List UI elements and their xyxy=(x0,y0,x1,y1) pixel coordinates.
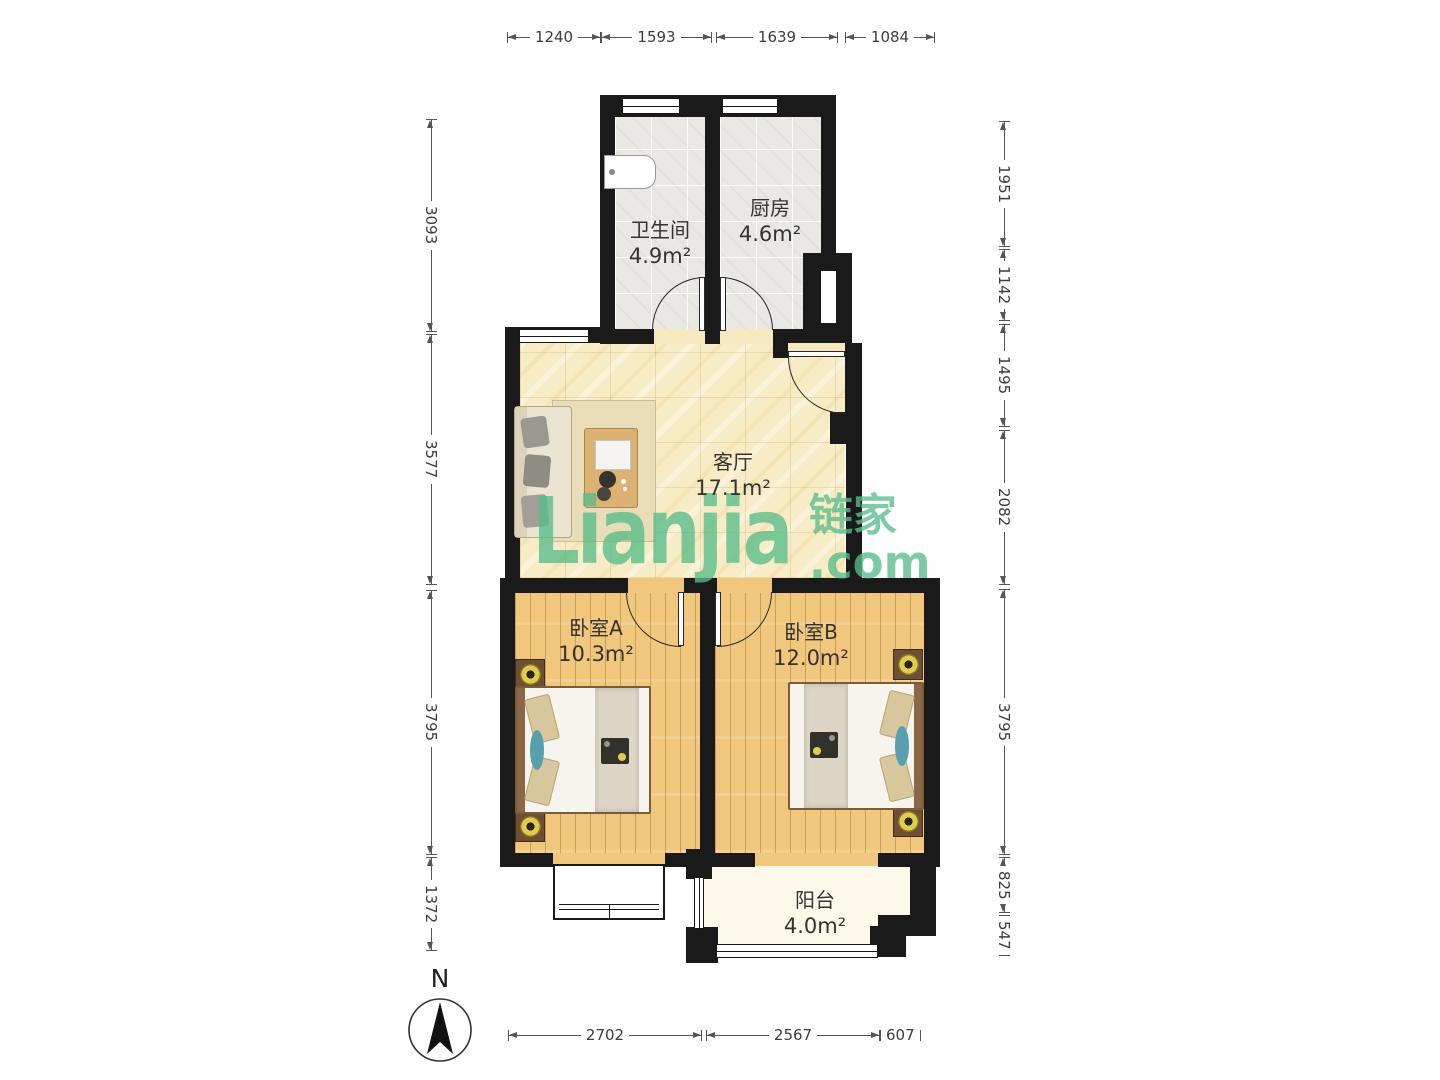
exterior-notch xyxy=(821,271,836,323)
dim-left-0: 3093 xyxy=(422,119,440,332)
room-label-bathroom: 卫生间 4.9m² xyxy=(605,218,715,269)
sofa-pillow xyxy=(521,494,550,528)
bedroom-a-bed xyxy=(515,686,651,814)
bedside-lamp-icon xyxy=(520,816,541,837)
bedside-lamp-icon xyxy=(898,811,919,832)
dim-right-1: 1142 xyxy=(995,249,1013,321)
bed-tray-item xyxy=(829,735,835,741)
kitchen-door-leaf xyxy=(720,277,726,331)
room-label-bedroom-a: 卧室A 10.3m² xyxy=(540,616,652,667)
dim-left-1: 3577 xyxy=(422,334,440,585)
room-name: 卧室A xyxy=(569,616,623,641)
bay-window-mullion xyxy=(609,904,610,918)
wall xyxy=(924,578,940,867)
room-name: 阳台 xyxy=(795,888,835,913)
dim-right-4: 3795 xyxy=(995,589,1013,855)
bathroom-washbasin xyxy=(604,155,656,189)
coffee-table-bowl xyxy=(599,471,616,488)
compass: N xyxy=(405,966,475,1066)
room-area: 12.0m² xyxy=(773,645,849,671)
dim-top-2: 1639 xyxy=(716,28,838,46)
dim-bottom-0: 2702 xyxy=(508,1026,702,1044)
dim-top-3: 1084 xyxy=(845,28,935,46)
wall xyxy=(845,343,862,418)
coffee-table-bowl xyxy=(597,487,611,501)
balcony-front-window xyxy=(716,944,878,958)
room-label-bedroom-b: 卧室B 12.0m² xyxy=(755,620,867,671)
room-label-living: 客厅 17.1m² xyxy=(678,450,788,501)
dim-right-2: 1495 xyxy=(995,324,1013,427)
dim-left-2: 3795 xyxy=(422,590,440,855)
wall xyxy=(818,323,852,344)
bed-accent-cushion xyxy=(530,730,544,770)
room-area: 4.0m² xyxy=(784,913,846,939)
wall xyxy=(846,412,862,592)
bedside-lamp-icon xyxy=(898,654,919,675)
balcony-opening-gap xyxy=(755,853,878,866)
coffee-table xyxy=(584,428,638,508)
bedside-lamp-icon xyxy=(520,664,541,685)
bathroom-door-gap xyxy=(654,329,705,344)
bed-headboard xyxy=(914,684,922,808)
bed-accent-cushion xyxy=(895,726,909,766)
wall xyxy=(686,927,718,963)
sofa-pillow xyxy=(520,415,550,448)
balcony-floor-right xyxy=(878,861,912,916)
bedroom-a-door-leaf xyxy=(678,592,684,646)
wall xyxy=(700,578,715,867)
coffee-table-cup xyxy=(621,479,626,484)
compass-north-label: N xyxy=(405,966,475,991)
nightstand xyxy=(893,806,923,837)
wall xyxy=(600,329,818,344)
nightstand xyxy=(893,649,923,680)
dim-right-5: 825 xyxy=(995,857,1013,913)
room-area: 10.3m² xyxy=(558,641,634,667)
room-name: 卫生间 xyxy=(630,218,690,243)
dim-right-3: 2082 xyxy=(995,430,1013,585)
washbasin-drain xyxy=(609,169,615,175)
wall xyxy=(500,578,515,867)
wall xyxy=(836,271,852,327)
bed-headboard xyxy=(517,688,525,812)
bed-tray-flower xyxy=(813,747,821,755)
balcony-side-window xyxy=(694,877,704,929)
wall xyxy=(686,849,712,879)
north-arrow-icon xyxy=(405,994,475,1066)
wall xyxy=(878,915,936,936)
bathroom-window xyxy=(622,98,680,114)
bed-tray-flower xyxy=(618,753,626,761)
bedroom-b-bed xyxy=(788,682,924,810)
floor-plan-canvas: Lianjia 链家 .com 卫生间 4.9m² 厨房 4.6m² 客厅 17… xyxy=(0,0,1440,1080)
bedroom-b-door-leaf xyxy=(715,592,721,646)
nightstand xyxy=(515,811,545,842)
room-area: 17.1m² xyxy=(695,475,771,501)
bedroom-a-door-gap xyxy=(628,578,684,593)
coffee-table-tray xyxy=(595,440,631,470)
room-name: 客厅 xyxy=(713,450,753,475)
coffee-table-cup xyxy=(623,487,627,491)
room-name: 卧室B xyxy=(784,620,838,645)
kitchen-door-gap xyxy=(720,329,773,344)
bed-tray-item xyxy=(604,741,610,747)
sofa xyxy=(514,406,572,538)
bed-tray xyxy=(601,738,629,764)
dim-bottom-2: 607 xyxy=(880,1026,935,1044)
room-area: 4.6m² xyxy=(739,221,801,247)
dim-top-0: 1240 xyxy=(507,28,601,46)
wall xyxy=(821,95,836,262)
living-room-window xyxy=(519,329,589,343)
dim-left-3: 1372 xyxy=(422,857,440,951)
bay-window xyxy=(553,864,665,920)
entry-door-leaf xyxy=(788,351,845,357)
bed-tray xyxy=(810,732,838,758)
dim-bottom-1: 2567 xyxy=(706,1026,880,1044)
room-area: 4.9m² xyxy=(629,243,691,269)
dim-right-0: 1951 xyxy=(995,121,1013,247)
bathroom-door-leaf xyxy=(699,277,705,331)
dim-top-1: 1593 xyxy=(601,28,712,46)
room-label-balcony: 阳台 4.0m² xyxy=(759,888,871,939)
kitchen-window xyxy=(722,98,778,114)
sofa-pillow xyxy=(523,454,552,488)
dim-right-6: 547 xyxy=(995,915,1013,959)
bedroom-b-door-gap xyxy=(717,578,772,593)
room-name: 厨房 xyxy=(750,196,790,221)
room-label-kitchen: 厨房 4.6m² xyxy=(718,196,822,247)
wall xyxy=(910,861,936,917)
